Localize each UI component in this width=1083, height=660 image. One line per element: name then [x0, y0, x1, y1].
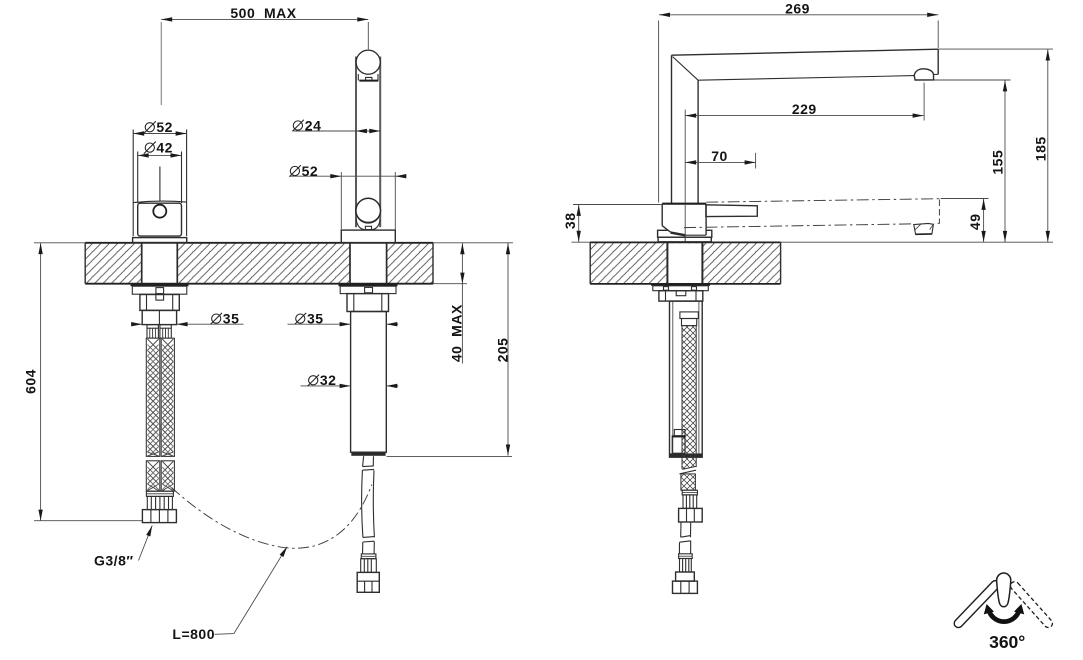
svg-text:38: 38 [562, 213, 578, 230]
svg-text:32: 32 [320, 372, 337, 388]
svg-text:52: 52 [302, 163, 319, 179]
svg-text:42: 42 [156, 139, 173, 155]
svg-text:L=800: L=800 [172, 626, 215, 642]
svg-text:52: 52 [156, 119, 173, 135]
svg-text:185: 185 [1032, 136, 1048, 161]
svg-text:155: 155 [990, 150, 1006, 175]
svg-text:269: 269 [785, 0, 810, 16]
svg-text:205: 205 [495, 338, 511, 363]
svg-text:229: 229 [792, 101, 817, 117]
svg-text:604: 604 [23, 369, 39, 394]
svg-text:G3/8″: G3/8″ [94, 553, 134, 569]
svg-text:24: 24 [305, 117, 322, 133]
svg-text:500 MAX: 500 MAX [230, 5, 296, 21]
svg-text:49: 49 [967, 214, 983, 231]
svg-text:35: 35 [223, 310, 240, 326]
svg-text:35: 35 [307, 310, 324, 326]
svg-text:40 MAX: 40 MAX [448, 304, 464, 362]
svg-text:70: 70 [711, 148, 728, 164]
svg-text:360°: 360° [989, 632, 1025, 652]
